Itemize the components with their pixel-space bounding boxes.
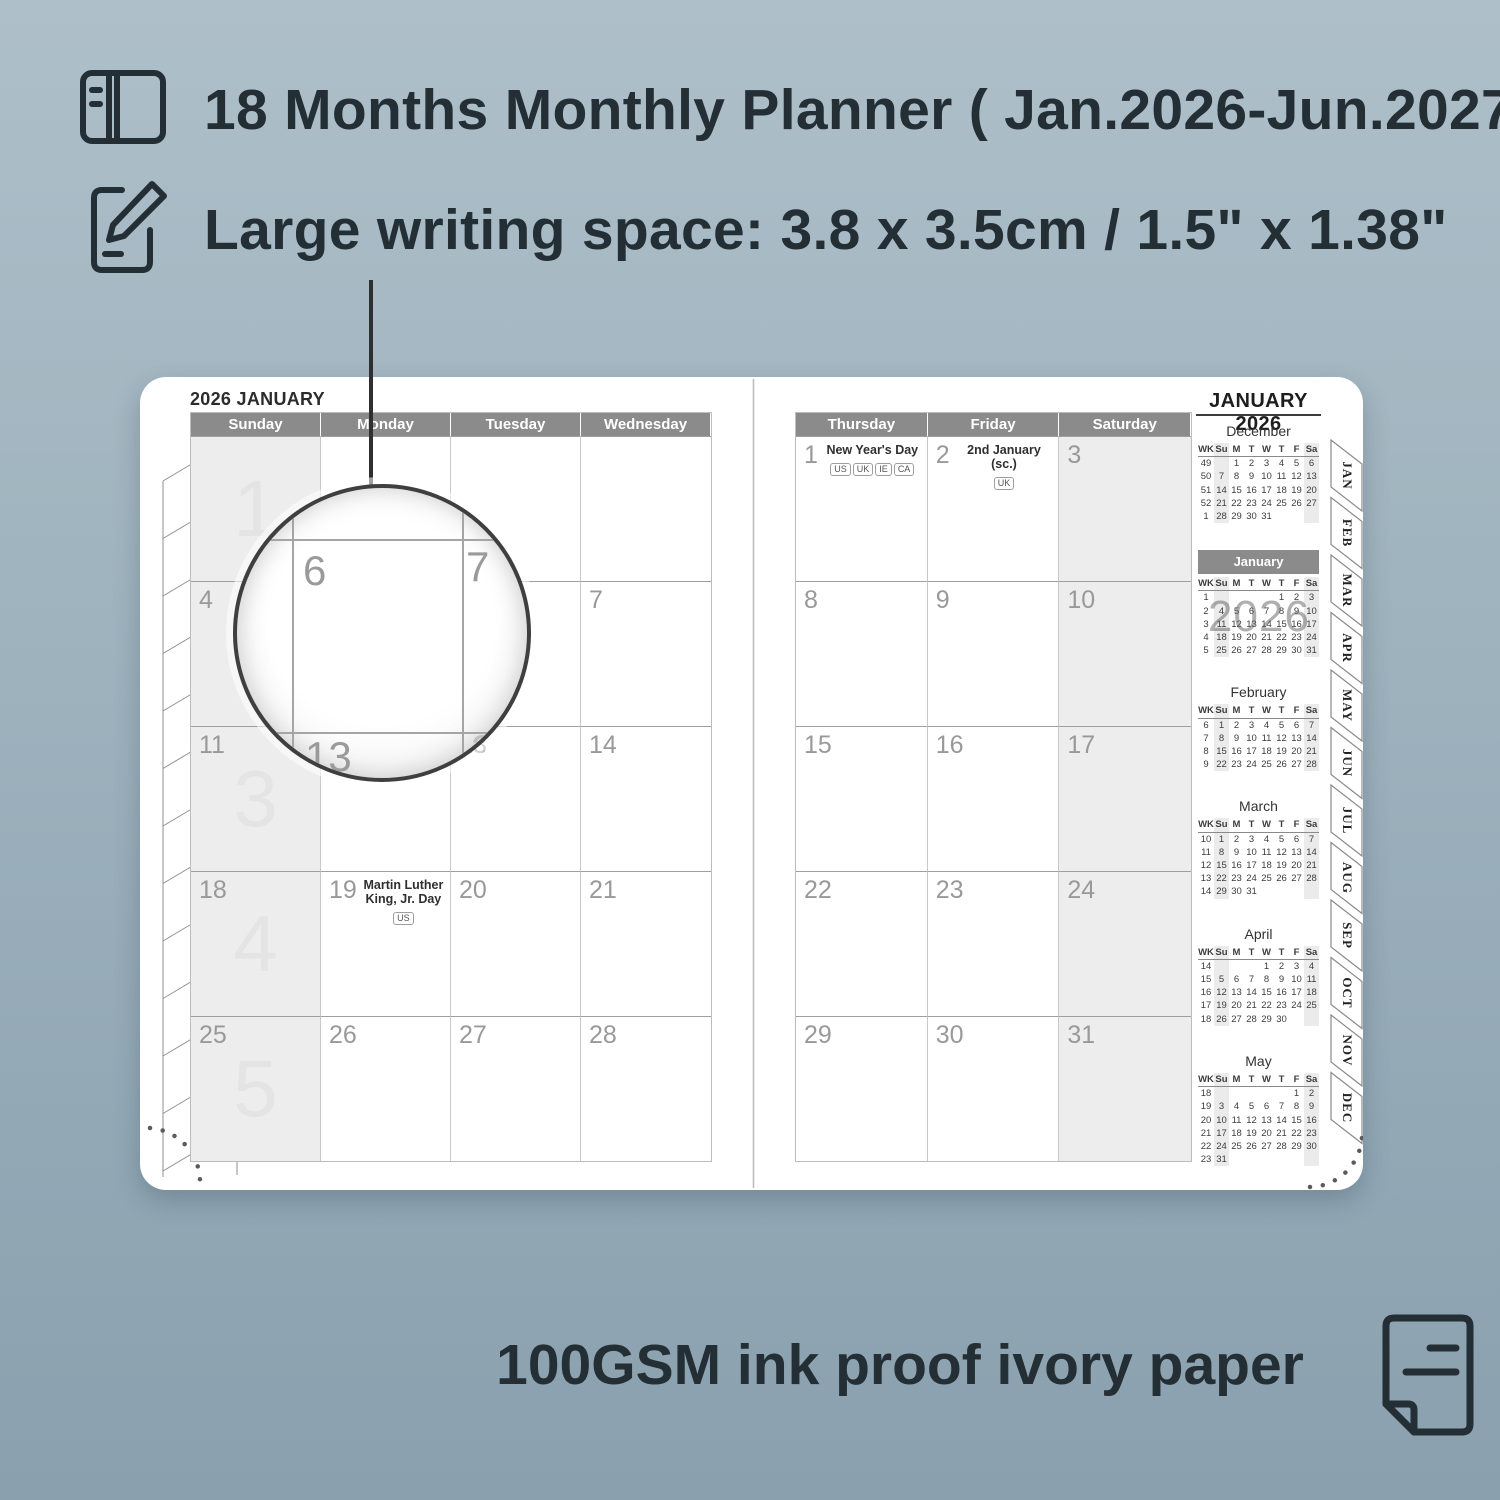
mini-cal-day: 12 [1274, 732, 1289, 745]
month-tab-label: JUN [1340, 749, 1355, 777]
date-number: 22 [804, 877, 832, 903]
mini-cal-week-number: 22 [1198, 1140, 1214, 1153]
calendar-cell: 16 [928, 726, 1060, 871]
date-number: 1 [804, 442, 818, 468]
calendar-cell: 8 [796, 581, 928, 726]
mini-cal-day: 7 [1244, 973, 1259, 986]
mini-cal-week-number: 2 [1198, 605, 1214, 618]
calendar-cell: 26 [321, 1016, 451, 1161]
mini-cal-day [1274, 885, 1289, 898]
month-tab-label: SEP [1340, 922, 1355, 949]
mini-cal-week-number: 14 [1198, 960, 1214, 973]
mini-cal-header-cell: WK [1198, 704, 1214, 718]
mini-cal-day: 26 [1229, 644, 1244, 657]
mini-cal-day: 22 [1214, 758, 1229, 771]
mini-cal-day: 30 [1274, 1013, 1289, 1026]
mini-cal-week-number: 14 [1198, 885, 1214, 898]
weekday-header: Tuesday [451, 413, 581, 436]
date-number: 24 [1067, 877, 1095, 903]
mini-calendar-month-title: January [1198, 550, 1319, 574]
mini-cal-day: 4 [1259, 719, 1274, 732]
magnified-grid-line [292, 488, 294, 778]
mini-cal-day: 14 [1274, 1114, 1289, 1127]
calendar-cell: 27 [451, 1016, 581, 1161]
mini-cal-day: 12 [1244, 1114, 1259, 1127]
mini-cal-day: 9 [1229, 732, 1244, 745]
date-number: 20 [459, 877, 487, 903]
mini-cal-day: 26 [1274, 872, 1289, 885]
mini-cal-day: 5 [1229, 605, 1244, 618]
mini-cal-header-cell: W [1259, 818, 1274, 832]
mini-cal-day: 21 [1259, 631, 1274, 644]
mini-cal-day: 17 [1244, 745, 1259, 758]
mini-cal-day: 21 [1304, 859, 1319, 872]
mini-cal-day: 8 [1274, 605, 1289, 618]
holiday: New Year's DayUSUKIECA [821, 442, 924, 477]
mini-cal-day: 5 [1214, 973, 1229, 986]
mini-cal-header-cell: Su [1214, 443, 1229, 457]
holiday-name: New Year's Day [821, 443, 924, 457]
mini-cal-week-number: 10 [1198, 833, 1214, 846]
mini-cal-day: 2 [1289, 591, 1304, 604]
mini-cal-week-number: 11 [1198, 846, 1214, 859]
mini-cal-day [1214, 457, 1229, 470]
date-number: 14 [589, 732, 617, 758]
mini-cal-day: 21 [1304, 745, 1319, 758]
mini-cal-day: 25 [1214, 644, 1229, 657]
mini-cal-header-cell: T [1274, 1073, 1289, 1087]
mini-cal-week-number: 19 [1198, 1100, 1214, 1113]
mini-cal-day: 17 [1304, 618, 1319, 631]
mini-cal-day: 15 [1214, 859, 1229, 872]
mini-cal-day [1229, 591, 1244, 604]
date-number: 26 [329, 1022, 357, 1048]
mini-cal-header-cell: WK [1198, 818, 1214, 832]
calendar-cell: 15 [796, 726, 928, 871]
mini-cal-day: 22 [1229, 497, 1244, 510]
sidebar-rule [1196, 414, 1321, 416]
mini-cal-day: 24 [1214, 1140, 1229, 1153]
holiday-region-badges: USUKIECA [821, 459, 924, 477]
mini-cal-day: 15 [1259, 986, 1274, 999]
calendar-cell [581, 436, 711, 581]
mini-cal-day [1214, 591, 1229, 604]
month-tab-label: APR [1340, 633, 1355, 663]
mini-cal-day: 8 [1289, 1100, 1304, 1113]
calendar-cell: 20 [451, 871, 581, 1016]
mini-cal-header-cell: F [1289, 577, 1304, 591]
month-tab-label: MAR [1340, 573, 1355, 607]
holiday-region-badges: UK [953, 473, 1056, 491]
mini-cal-header-cell: Sa [1304, 443, 1319, 457]
mini-cal-day: 10 [1244, 732, 1259, 745]
mini-cal-day: 24 [1304, 631, 1319, 644]
mini-cal-day: 4 [1214, 605, 1229, 618]
mini-cal-header-cell: Su [1214, 577, 1229, 591]
mini-cal-header-cell: T [1244, 577, 1259, 591]
region-badge: US [393, 912, 414, 925]
month-tab-label: OCT [1340, 977, 1355, 1008]
calendar-cell: 9 [928, 581, 1060, 726]
pencil-note-icon [88, 178, 170, 281]
feature-line-writing-space: Large writing space: 3.8 x 3.5cm / 1.5" … [88, 178, 1448, 281]
week-number-watermark: 4 [191, 898, 320, 990]
mini-cal-week-number: 9 [1198, 758, 1214, 771]
mini-cal-week-number: 51 [1198, 484, 1214, 497]
mini-cal-header-cell: T [1244, 443, 1259, 457]
date-number: 15 [804, 732, 832, 758]
mini-cal-day: 26 [1214, 1013, 1229, 1026]
mini-cal-day: 9 [1244, 470, 1259, 483]
mini-cal-day: 15 [1289, 1114, 1304, 1127]
mini-cal-day: 7 [1304, 719, 1319, 732]
mini-cal-day: 27 [1289, 872, 1304, 885]
date-number: 3 [1067, 442, 1081, 468]
mini-cal-day: 11 [1304, 973, 1319, 986]
mini-cal-day: 5 [1274, 833, 1289, 846]
mini-cal-day: 11 [1214, 618, 1229, 631]
magnified-date-number: 13 [305, 736, 352, 778]
mini-cal-day: 18 [1229, 1127, 1244, 1140]
mini-cal-header-cell: T [1274, 946, 1289, 960]
mini-cal-header-cell: M [1229, 443, 1244, 457]
mini-cal-day: 9 [1304, 1100, 1319, 1113]
mini-cal-day: 4 [1229, 1100, 1244, 1113]
mini-cal-day: 23 [1274, 999, 1289, 1012]
magnified-date-number: 6 [303, 550, 326, 592]
mini-cal-week-number: 4 [1198, 631, 1214, 644]
mini-cal-day: 29 [1229, 510, 1244, 523]
mini-cal-day: 7 [1274, 1100, 1289, 1113]
calendar-cell: 24 [1059, 871, 1191, 1016]
mini-cal-day: 21 [1274, 1127, 1289, 1140]
mini-cal-day: 24 [1259, 497, 1274, 510]
date-number: 30 [936, 1022, 964, 1048]
mini-cal-day [1304, 1013, 1319, 1026]
mini-cal-day: 1 [1214, 719, 1229, 732]
date-number: 10 [1067, 587, 1095, 613]
mini-cal-day: 6 [1259, 1100, 1274, 1113]
mini-cal-header-cell: M [1229, 1073, 1244, 1087]
mini-cal-header-cell: W [1259, 946, 1274, 960]
mini-cal-day: 1 [1289, 1087, 1304, 1100]
month-tab-label: JUL [1340, 807, 1355, 835]
date-number: 17 [1067, 732, 1095, 758]
mini-cal-header-cell: Sa [1304, 1073, 1319, 1087]
date-number: 4 [199, 587, 213, 613]
mini-cal-day: 9 [1274, 973, 1289, 986]
mini-cal-day [1214, 1087, 1229, 1100]
mini-cal-week-number: 5 [1198, 644, 1214, 657]
month-tab-label: NOV [1340, 1035, 1355, 1067]
mini-cal-day: 24 [1289, 999, 1304, 1012]
mini-cal-day: 14 [1244, 986, 1259, 999]
date-number: 2 [936, 442, 950, 468]
calendar-cell: 28 [581, 1016, 711, 1161]
month-tab-label: MAY [1340, 689, 1355, 722]
mini-cal-day: 28 [1259, 644, 1274, 657]
month-tab-label: AUG [1340, 862, 1355, 894]
mini-cal-day: 3 [1214, 1100, 1229, 1113]
left-page-title: 2026 JANUARY [190, 389, 325, 410]
magnified-grid-line [237, 539, 527, 541]
mini-cal-header-cell: T [1244, 704, 1259, 718]
mini-cal-day: 3 [1244, 833, 1259, 846]
calendar-cell: 23 [928, 871, 1060, 1016]
right-month-grid: ThursdayFridaySaturday1New Year's DayUSU… [795, 412, 1192, 1162]
month-tab-label: JAN [1340, 461, 1355, 489]
mini-cal-day: 29 [1214, 885, 1229, 898]
mini-cal-day: 29 [1259, 1013, 1274, 1026]
mini-cal-day [1259, 885, 1274, 898]
date-number: 21 [589, 877, 617, 903]
date-number: 19 [329, 877, 357, 903]
mini-cal-day: 30 [1289, 644, 1304, 657]
region-badge: US [830, 463, 851, 476]
mini-cal-day [1304, 510, 1319, 523]
date-number: 7 [589, 587, 603, 613]
magnifier-circle: 67133 [233, 484, 531, 782]
month-tab-label: DEC [1340, 1093, 1355, 1123]
month-tab-strip: JANFEBMARAPRMAYJUNJULAUGSEPOCTNOVDEC [1331, 440, 1362, 1144]
mini-cal-day: 9 [1289, 605, 1304, 618]
mini-cal-day: 16 [1304, 1114, 1319, 1127]
mini-cal-day: 27 [1289, 758, 1304, 771]
mini-cal-header-cell: WK [1198, 577, 1214, 591]
mini-cal-day: 13 [1304, 470, 1319, 483]
mini-cal-week-number: 49 [1198, 457, 1214, 470]
mini-cal-day: 20 [1229, 999, 1244, 1012]
mini-cal-day: 6 [1244, 605, 1259, 618]
date-number: 16 [936, 732, 964, 758]
mini-cal-day: 2 [1304, 1087, 1319, 1100]
mini-cal-header-cell: Sa [1304, 946, 1319, 960]
region-badge: IE [875, 463, 892, 476]
mini-cal-day: 10 [1214, 1114, 1229, 1127]
mini-cal-day: 19 [1274, 745, 1289, 758]
mini-cal-day: 10 [1244, 846, 1259, 859]
mini-cal-day [1244, 1087, 1259, 1100]
weekday-header: Saturday [1059, 413, 1191, 436]
mini-cal-day: 8 [1229, 470, 1244, 483]
mini-cal-day: 7 [1304, 833, 1319, 846]
mini-cal-day: 20 [1259, 1127, 1274, 1140]
mini-cal-day: 10 [1259, 470, 1274, 483]
mini-cal-day: 19 [1274, 859, 1289, 872]
calendar-cell: 418 [191, 871, 321, 1016]
mini-cal-day: 18 [1259, 859, 1274, 872]
mini-cal-day: 30 [1244, 510, 1259, 523]
mini-cal-day: 2 [1274, 960, 1289, 973]
mini-cal-day: 19 [1289, 484, 1304, 497]
mini-cal-week-number: 6 [1198, 719, 1214, 732]
week-number-watermark: 5 [191, 1043, 320, 1135]
mini-cal-header-cell: M [1229, 818, 1244, 832]
date-number: 25 [199, 1022, 227, 1048]
mini-cal-day: 17 [1289, 986, 1304, 999]
product-image: 18 Months Monthly Planner ( Jan.2026-Jun… [0, 0, 1500, 1500]
mini-cal-header-cell: W [1259, 443, 1274, 457]
mini-cal-day: 22 [1214, 872, 1229, 885]
feature-text: Large writing space: 3.8 x 3.5cm / 1.5" … [204, 197, 1448, 263]
date-number: 11 [199, 732, 225, 758]
mini-cal-day: 12 [1229, 618, 1244, 631]
mini-cal-day: 12 [1214, 986, 1229, 999]
mini-cal-day: 11 [1229, 1114, 1244, 1127]
mini-cal-week-number: 23 [1198, 1153, 1214, 1166]
mini-cal-day: 26 [1274, 758, 1289, 771]
mini-cal-day: 14 [1259, 618, 1274, 631]
mini-cal-day [1244, 960, 1259, 973]
mini-cal-day: 23 [1289, 631, 1304, 644]
mini-calendar-grid: WKSuMTWTFSa61234567789101112131481516171… [1198, 704, 1319, 771]
mini-cal-day: 8 [1214, 846, 1229, 859]
holiday-name: Martin Luther King, Jr. Day [360, 878, 447, 906]
mini-cal-header-cell: M [1229, 577, 1244, 591]
mini-cal-day: 2 [1229, 719, 1244, 732]
mini-calendar: FebruaryWKSuMTWTFSa612345677891011121314… [1198, 684, 1319, 771]
mini-cal-header-cell: T [1274, 443, 1289, 457]
mini-cal-week-number: 20 [1198, 1114, 1214, 1127]
mini-cal-day: 23 [1304, 1127, 1319, 1140]
mini-cal-day: 28 [1274, 1140, 1289, 1153]
mini-cal-day: 4 [1304, 960, 1319, 973]
mini-cal-week-number: 1 [1198, 510, 1214, 523]
mini-cal-week-number: 7 [1198, 732, 1214, 745]
mini-cal-header-cell: Sa [1304, 704, 1319, 718]
mini-cal-day [1289, 885, 1304, 898]
mini-cal-header-cell: W [1259, 704, 1274, 718]
mini-cal-day: 13 [1289, 846, 1304, 859]
mini-cal-day: 15 [1274, 618, 1289, 631]
mini-cal-day: 16 [1229, 745, 1244, 758]
mini-cal-day: 6 [1289, 833, 1304, 846]
mini-cal-header-cell: WK [1198, 946, 1214, 960]
mini-cal-header-cell: T [1244, 818, 1259, 832]
mini-cal-week-number: 18 [1198, 1013, 1214, 1026]
mini-cal-day: 31 [1304, 644, 1319, 657]
mini-cal-week-number: 16 [1198, 986, 1214, 999]
mini-cal-day: 25 [1259, 872, 1274, 885]
mini-cal-day: 27 [1259, 1140, 1274, 1153]
mini-cal-day: 14 [1214, 484, 1229, 497]
mini-cal-day [1229, 1153, 1244, 1166]
mini-cal-day: 11 [1274, 470, 1289, 483]
mini-cal-day: 28 [1304, 872, 1319, 885]
week-number-watermark: 3 [191, 753, 320, 845]
feature-text: 18 Months Monthly Planner ( Jan.2026-Jun… [204, 77, 1500, 143]
mini-cal-day: 2 [1229, 833, 1244, 846]
mini-cal-header-cell: Sa [1304, 818, 1319, 832]
mini-cal-day: 31 [1214, 1153, 1229, 1166]
date-number: 18 [199, 877, 227, 903]
mini-cal-week-number: 50 [1198, 470, 1214, 483]
mini-calendar-month-title: May [1198, 1053, 1319, 1070]
mini-cal-day [1289, 1013, 1304, 1026]
callout-line [369, 280, 373, 490]
mini-cal-day: 12 [1274, 846, 1289, 859]
calendar-cell: 10 [1059, 581, 1191, 726]
mini-cal-week-number: 3 [1198, 618, 1214, 631]
mini-cal-day: 23 [1229, 758, 1244, 771]
calendar-cell: 17 [1059, 726, 1191, 871]
mini-calendar-grid: WKSuMTWTFSa11232456789103111213141516174… [1198, 577, 1319, 657]
mini-cal-day [1289, 1153, 1304, 1166]
mini-cal-week-number: 12 [1198, 859, 1214, 872]
date-number: 31 [1067, 1022, 1095, 1048]
mini-calendar-month-title: February [1198, 684, 1319, 701]
mini-cal-header-cell: Su [1214, 704, 1229, 718]
mini-cal-day: 10 [1289, 973, 1304, 986]
mini-calendar-column: DecemberWKSuMTWTFSa491234565078910111213… [1198, 423, 1319, 1166]
mini-cal-header-cell: Sa [1304, 577, 1319, 591]
date-number: 23 [936, 877, 964, 903]
mini-calendar: AprilWKSuMTWTFSa141234155678910111612131… [1198, 926, 1319, 1026]
mini-cal-day [1289, 510, 1304, 523]
mini-cal-header-cell: T [1274, 577, 1289, 591]
mini-calendar: MarchWKSuMTWTFSa101234567118910111213141… [1198, 798, 1319, 898]
mini-calendar-grid: WKSuMTWTFSa18121934567892010111213141516… [1198, 1073, 1319, 1166]
mini-cal-header-cell: T [1244, 1073, 1259, 1087]
calendar-cell: 31 [1059, 1016, 1191, 1161]
mini-cal-day: 27 [1229, 1013, 1244, 1026]
mini-cal-day [1229, 960, 1244, 973]
mini-cal-day: 6 [1229, 973, 1244, 986]
mini-cal-day [1259, 1087, 1274, 1100]
weekday-header: Wednesday [581, 413, 711, 436]
mini-cal-day: 6 [1289, 719, 1304, 732]
holiday: Martin Luther King, Jr. DayUS [360, 877, 447, 926]
holiday-region-badges: US [360, 908, 447, 926]
mini-cal-day: 27 [1244, 644, 1259, 657]
mini-cal-header-cell: F [1289, 443, 1304, 457]
mini-cal-header-cell: F [1289, 1073, 1304, 1087]
mini-cal-day: 23 [1244, 497, 1259, 510]
date-number: 27 [459, 1022, 487, 1048]
calendar-cell: 22nd January (sc.)UK [928, 436, 1060, 581]
magnified-grid-line [462, 488, 464, 778]
mini-cal-week-number: 17 [1198, 999, 1214, 1012]
month-tab-label: FEB [1340, 519, 1355, 547]
date-number: 9 [936, 587, 950, 613]
mini-calendar: MayWKSuMTWTFSa18121934567892010111213141… [1198, 1053, 1319, 1166]
mini-cal-day: 30 [1304, 1140, 1319, 1153]
date-number: 29 [804, 1022, 832, 1048]
mini-cal-day: 13 [1289, 732, 1304, 745]
mini-cal-day: 18 [1274, 484, 1289, 497]
mini-cal-header-cell: F [1289, 818, 1304, 832]
mini-cal-week-number: 21 [1198, 1127, 1214, 1140]
mini-cal-day: 28 [1304, 758, 1319, 771]
holiday-name: 2nd January (sc.) [953, 443, 1056, 471]
mini-cal-header-cell: F [1289, 946, 1304, 960]
mini-cal-day: 1 [1259, 960, 1274, 973]
region-badge: UK [994, 477, 1015, 490]
mini-cal-day: 18 [1214, 631, 1229, 644]
mini-cal-day: 29 [1289, 1140, 1304, 1153]
mini-cal-day: 16 [1244, 484, 1259, 497]
mini-cal-day: 20 [1304, 484, 1319, 497]
mini-calendar-grid: WKSuMTWTFSa14123415567891011161213141516… [1198, 946, 1319, 1026]
mini-cal-day [1244, 591, 1259, 604]
mini-cal-day: 26 [1244, 1140, 1259, 1153]
mini-cal-day [1304, 885, 1319, 898]
mini-cal-day: 24 [1244, 872, 1259, 885]
mini-cal-day: 11 [1259, 846, 1274, 859]
mini-cal-day: 7 [1214, 470, 1229, 483]
mini-cal-day: 20 [1244, 631, 1259, 644]
mini-cal-day: 25 [1259, 758, 1274, 771]
